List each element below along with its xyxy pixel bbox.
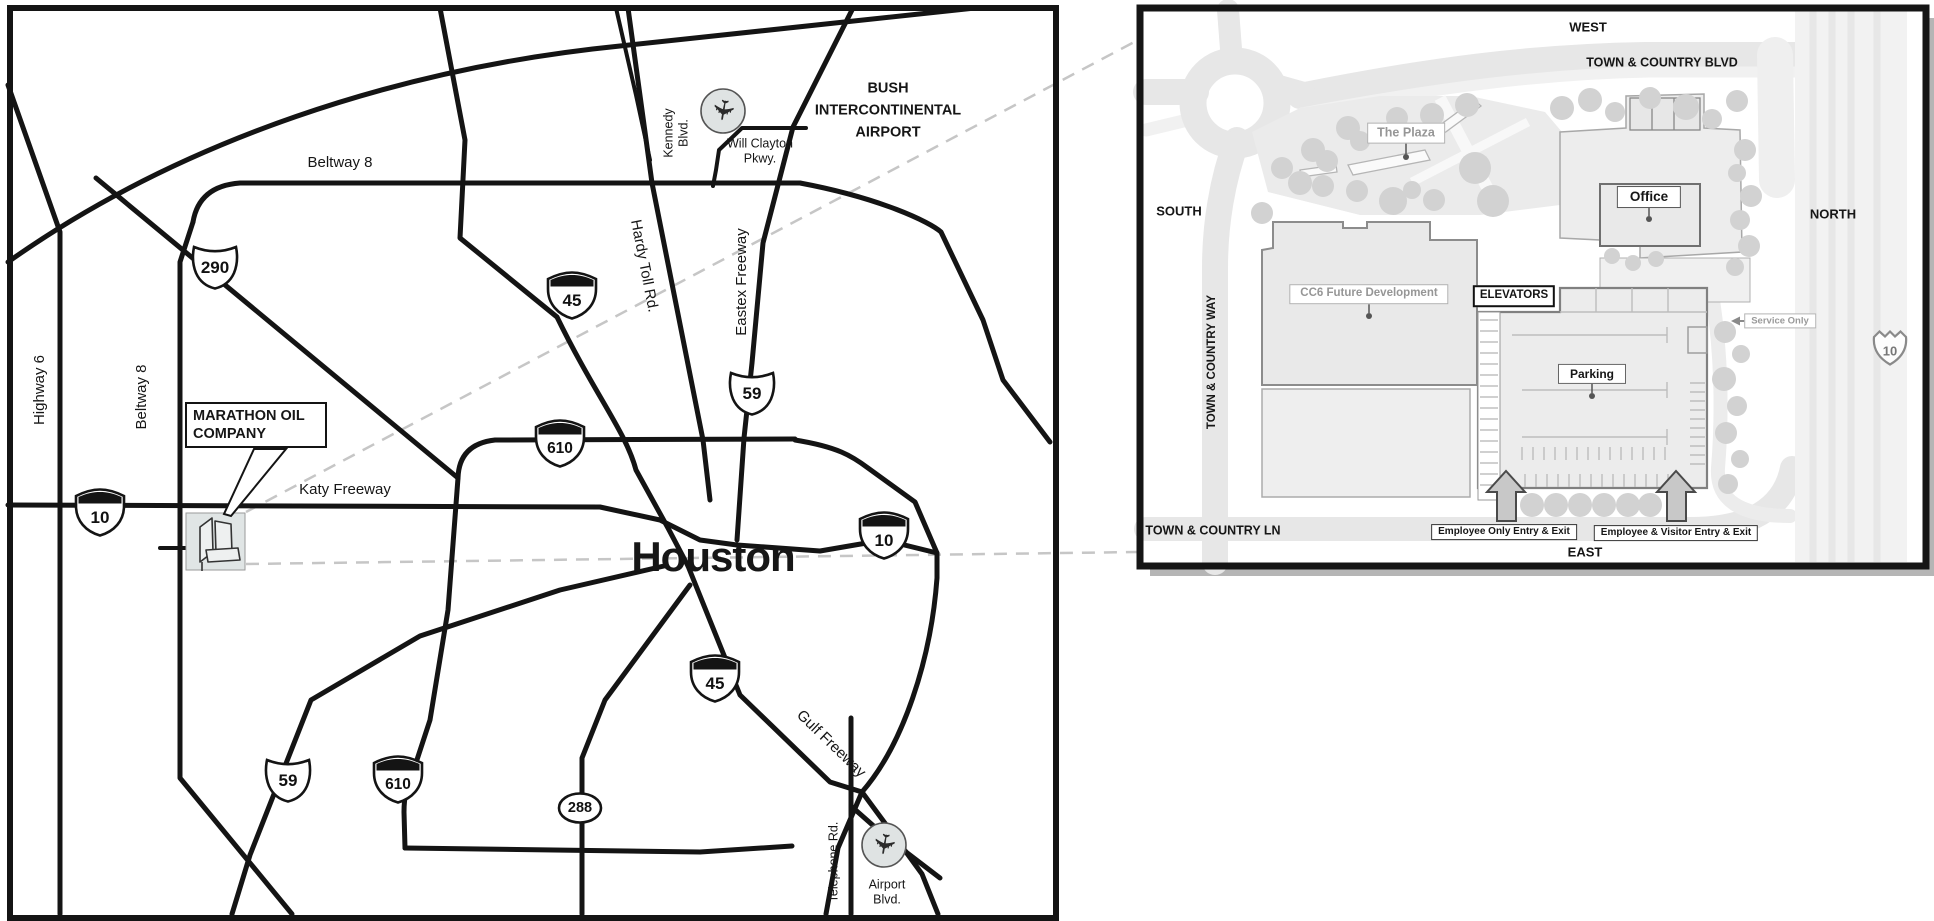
inset-i10-shield-number: 10 [1883, 344, 1897, 359]
kennedy-line2: Blvd. [676, 108, 691, 157]
i10-east-shield-number: 10 [875, 531, 894, 551]
north-street-stub [1775, 55, 1777, 180]
airport-blvd-line2: Blvd. [869, 892, 906, 907]
i610-south-shield-number: 610 [385, 776, 411, 794]
will-clayton-label: Will Clayton Pkwy. [727, 136, 793, 166]
inset-parking-label: Parking [1558, 364, 1626, 384]
cc6-lower-block [1262, 389, 1470, 497]
highway6-label: Highway 6 [31, 355, 49, 425]
inset-west-label: WEST [1569, 19, 1607, 34]
marathon-line2: COMPANY [193, 425, 319, 443]
us290-shield-number: 290 [201, 258, 229, 278]
inset-cc6-label: CC6 Future Development [1289, 284, 1448, 304]
beltway8-left-label: Beltway 8 [133, 364, 151, 429]
inset-east-label: EAST [1568, 544, 1603, 559]
houston-location-map: Beltway 8 Beltway 8 Highway 6 Kennedy Bl… [0, 0, 1934, 921]
us59-south-shield-number: 59 [279, 771, 298, 791]
inset-north-label: NORTH [1810, 206, 1856, 221]
eastex-freeway-label: Eastex Freeway [733, 228, 751, 336]
katy-freeway-label: Katy Freeway [299, 481, 391, 499]
marathon-line1: MARATHON OIL [193, 407, 319, 425]
will-clayton-line1: Will Clayton [727, 136, 793, 151]
elevator-core-strip [1478, 312, 1500, 500]
bush-line3: AIRPORT [815, 122, 961, 144]
inset-employee-visitor-label: Employee & Visitor Entry & Exit [1594, 525, 1758, 541]
inset-employee-only-label: Employee Only Entry & Exit [1431, 524, 1577, 540]
will-clayton-line2: Pkwy. [727, 151, 793, 166]
i610-north-shield-number: 610 [547, 440, 573, 458]
us59-north-shield-number: 59 [743, 384, 762, 404]
telephone-rd-label: Telephone Rd. [827, 822, 842, 903]
houston-city-label: Houston [631, 532, 794, 582]
i10-west-shield-number: 10 [91, 508, 110, 528]
i45-south-shield-number: 45 [706, 674, 725, 694]
bush-line2: INTERCONTINENTAL [815, 100, 961, 122]
inset-service-only-label: Service Only [1744, 313, 1816, 328]
beltway8-top-label: Beltway 8 [307, 154, 372, 172]
i10-freeway-band [1795, 8, 1907, 562]
main-map-background [10, 8, 1056, 918]
marathon-callout-box: MARATHON OIL COMPANY [185, 402, 327, 448]
airport-blvd-line1: Airport [869, 877, 906, 892]
inset-tc-ln-label: TOWN & COUNTRY LN [1145, 524, 1280, 539]
kennedy-line1: Kennedy [661, 108, 676, 157]
i45-north-shield-number: 45 [563, 291, 582, 311]
inset-south-label: SOUTH [1156, 203, 1202, 218]
kennedy-blvd-label: Kennedy Blvd. [661, 108, 691, 157]
inset-office-label: Office [1617, 186, 1681, 208]
bush-airport-label: BUSH INTERCONTINENTAL AIRPORT [815, 78, 961, 143]
inset-tc-way-label: TOWN & COUNTRY WAY [1206, 295, 1220, 429]
bush-line1: BUSH [815, 78, 961, 100]
inset-elevators-label: ELEVATORS [1473, 285, 1555, 307]
airport-blvd-label: Airport Blvd. [869, 877, 906, 907]
sh288-shield-number: 288 [568, 800, 592, 816]
inset-plaza-label: The Plaza [1367, 123, 1445, 144]
inset-tc-blvd-label: TOWN & COUNTRY BLVD [1586, 56, 1738, 71]
